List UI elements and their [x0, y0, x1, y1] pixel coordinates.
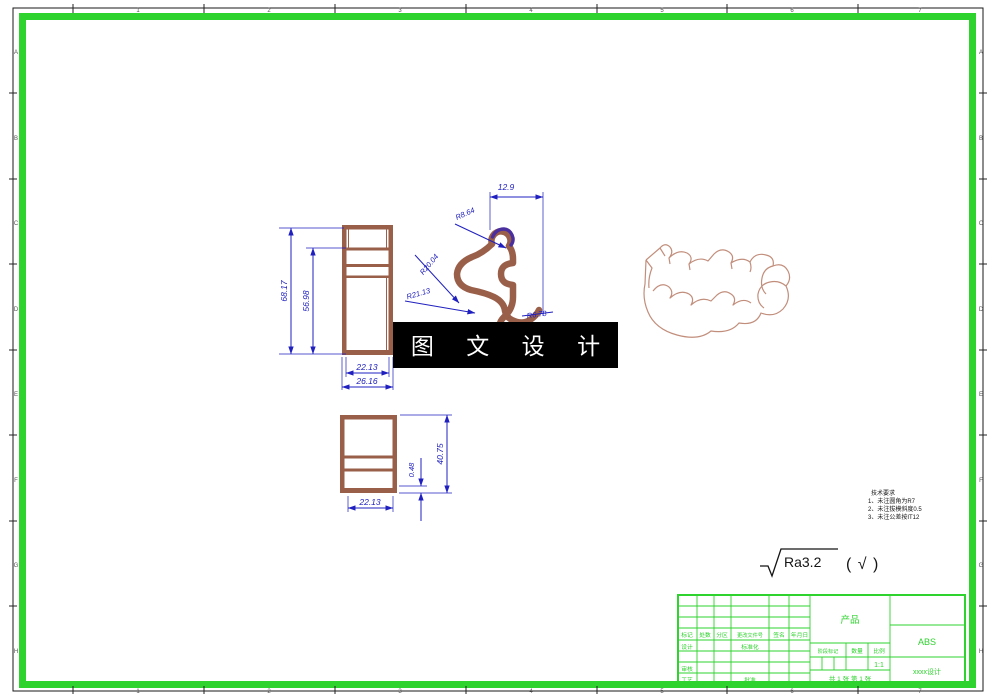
tb-row-audit: 审核: [681, 665, 693, 673]
technical-notes: 技术要求 1、未注圆角为R7 2、未注拔模斜度0.5 3、未注公差按IT12: [868, 489, 922, 521]
cad-drawing-sheet: 1 2 3 4 5 6 7 1 2 3 4 5 6 7 A B C D E F …: [0, 0, 993, 695]
tb-col-count: 处数: [699, 631, 711, 639]
zone-label: 3: [398, 689, 402, 695]
tb-col-mark: 标记: [681, 631, 693, 639]
tb-row-design: 设计: [681, 643, 693, 651]
title-block: 标记 处数 分区 更改文件号 签名 年月日 设计 标准化 审核 工艺 批准 产品…: [678, 595, 965, 684]
roughness-value: Ra3.2: [784, 554, 822, 570]
tb-scale-value: 1:1: [874, 662, 884, 669]
zone-label: F: [979, 478, 983, 484]
dim-radius-large: R21.13: [405, 286, 432, 302]
drawing-canvas: 1 2 3 4 5 6 7 1 2 3 4 5 6 7 A B C D E F …: [0, 0, 993, 695]
zone-numbers-bottom: 1 2 3 4 5 6 7: [136, 689, 922, 695]
bottom-view: 40.75 0.48 22.13: [340, 415, 452, 521]
tb-row-approve: 批准: [744, 676, 756, 684]
zone-label: 1: [136, 689, 140, 695]
tb-row-craft: 工艺: [681, 676, 693, 684]
zone-label: 6: [790, 689, 794, 695]
bottom-view-geometry: [340, 415, 397, 493]
dim-radius-mid: R20.04: [418, 252, 440, 276]
dim-radius-small: R8.64: [454, 206, 476, 222]
iso-view: [644, 245, 790, 338]
zone-label: F: [14, 478, 18, 484]
dim-side-width-outer: 26.16: [355, 376, 378, 386]
zone-label: 2: [267, 689, 271, 695]
zone-label: E: [979, 392, 983, 398]
side-section-view: 68.17 56.98 22.13 26.16: [279, 225, 393, 390]
zone-label: 7: [918, 689, 922, 695]
side-view-geometry: [342, 225, 393, 355]
zone-label: C: [14, 221, 19, 227]
zone-label: E: [14, 392, 18, 398]
zone-label: 4: [529, 689, 533, 695]
zone-label: G: [979, 563, 984, 569]
dim-side-height-outer: 68.17: [279, 280, 289, 302]
zone-label: H: [979, 649, 983, 655]
roughness-paren: ( √ ): [846, 556, 879, 573]
note-item: 2、未注拔模斜度0.5: [868, 505, 922, 513]
zone-label: H: [14, 649, 18, 655]
note-item: 1、未注圆角为R7: [868, 497, 916, 505]
tb-stage-label: 阶段标记: [818, 647, 839, 655]
tb-product-name: 产品: [840, 614, 859, 626]
tb-material: ABS: [918, 637, 936, 647]
dim-bottom-height: 40.75: [435, 443, 445, 465]
dim-side-height-inner: 56.98: [301, 290, 311, 312]
dim-bottom-width: 22.13: [358, 497, 381, 507]
dim-radius-lower: R6.78: [526, 309, 548, 321]
title-block-labels: 标记 处数 分区 更改文件号 签名 年月日 设计 标准化 审核 工艺 批准 产品…: [681, 614, 941, 684]
dim-profile-top-width: 12.9: [498, 182, 515, 192]
side-view-dimensions: 68.17 56.98 22.13 26.16: [279, 228, 393, 390]
tb-sheet-info: 共 1 张 第 1 张: [829, 674, 872, 683]
zone-letters-left: A B C D E F G H: [14, 50, 19, 655]
dim-side-width-inner: 22.13: [355, 362, 378, 372]
zone-label: D: [979, 307, 984, 313]
zone-label: D: [14, 307, 19, 313]
tb-scale-label: 比例: [873, 647, 885, 655]
dim-bottom-rib: 0.48: [407, 462, 416, 477]
tb-col-changefile: 更改文件号: [737, 631, 763, 639]
tb-qty-label: 数量: [851, 647, 863, 655]
tb-col-date: 年月日: [791, 631, 808, 639]
zone-label: G: [14, 563, 19, 569]
zone-label: B: [979, 136, 983, 142]
zone-label: B: [14, 136, 18, 142]
tb-company: xxxx设计: [913, 667, 941, 676]
tb-col-signature: 签名: [773, 631, 785, 639]
profile-view: 12.9 R8.64 R20.04 R21.13 R6.78: [405, 182, 553, 324]
zone-label: C: [979, 221, 984, 227]
watermark: 图 文 设 计: [393, 322, 618, 368]
tb-col-zone: 分区: [716, 631, 728, 639]
note-item: 3、未注公差按IT12: [868, 513, 920, 521]
profile-geometry: [457, 229, 539, 324]
tb-row-standard: 标准化: [741, 643, 759, 651]
bottom-view-dimensions: 40.75 0.48 22.13: [348, 415, 452, 521]
zone-label: A: [14, 50, 18, 56]
surface-roughness: Ra3.2 ( √ ): [760, 549, 879, 576]
notes-title: 技术要求: [871, 489, 895, 497]
zone-label: A: [979, 50, 983, 56]
watermark-text: 图 文 设 计: [411, 333, 613, 359]
zone-label: 5: [660, 689, 664, 695]
